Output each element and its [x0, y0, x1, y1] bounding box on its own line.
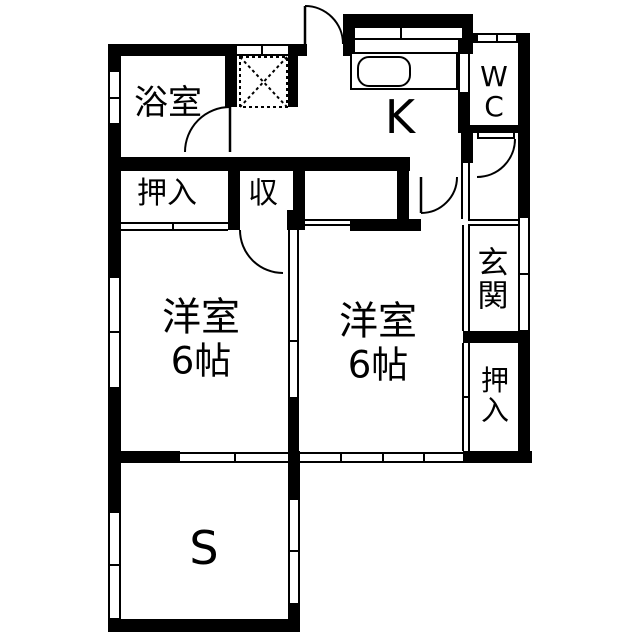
- room-label-service: S: [189, 525, 218, 571]
- wc-door-arc: [477, 139, 515, 177]
- room-label-entrance: 玄 関: [478, 248, 509, 315]
- back-door-arc: [305, 6, 343, 44]
- room-label-western-left: 洋室: [162, 299, 240, 338]
- washing-machine-area: [240, 57, 287, 107]
- room-label-storage: 収: [248, 179, 278, 209]
- room-label-closet-right: 押 入: [481, 366, 509, 426]
- room-label-western-right: 洋室: [339, 303, 417, 342]
- entrance-char-1: 玄: [478, 248, 509, 281]
- room-size-western-right: 6帖: [348, 347, 409, 384]
- room-label-wc: W C: [480, 62, 508, 122]
- closet-right-char-2: 入: [481, 396, 509, 426]
- wc-char-w: W: [480, 62, 508, 92]
- room-size-western-left: 6帖: [171, 343, 232, 380]
- door-swings-overlay: [0, 0, 640, 640]
- room-label-closet-left: 押入: [137, 179, 197, 209]
- kitchen-door-arc: [421, 177, 457, 213]
- closet-right-char-1: 押: [481, 366, 509, 396]
- floor-plan: 浴室 押入 収 K W C 玄 関 洋室 6帖 洋室 6帖 押 入 S: [0, 0, 640, 640]
- entrance-char-2: 関: [478, 281, 509, 314]
- room-label-kitchen: K: [385, 94, 415, 140]
- wc-char-c: C: [484, 92, 504, 122]
- room-label-bathroom: 浴室: [134, 86, 202, 120]
- storage-door-arc: [240, 230, 283, 273]
